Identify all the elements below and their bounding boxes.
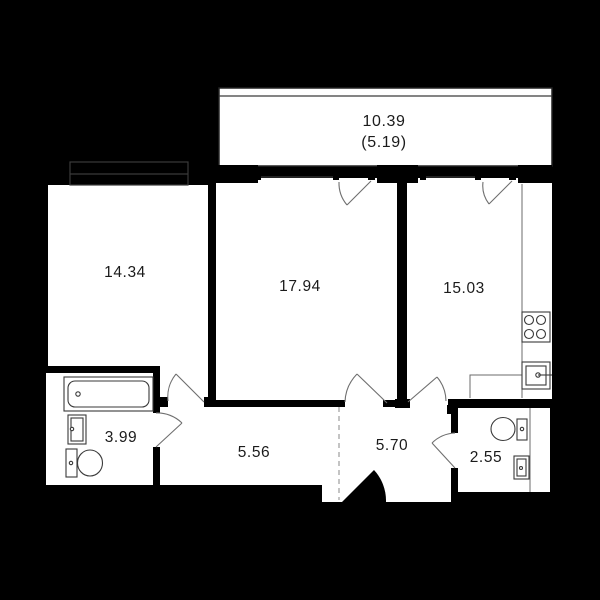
wall-segment	[208, 165, 258, 183]
label-entry-hall: 5.70	[376, 437, 409, 454]
window-end-block	[255, 173, 261, 180]
door-hinge-block	[509, 173, 516, 180]
stove-hob	[522, 312, 550, 342]
wall-bedroom-kitchen	[397, 183, 407, 405]
label-balcony-half: (5.19)	[361, 134, 406, 151]
window-end-block	[420, 173, 426, 180]
opening-kitchen	[408, 399, 448, 408]
label-bathroom: 3.99	[105, 429, 138, 446]
washbasin	[68, 415, 86, 444]
door-hinge-block	[368, 173, 375, 180]
opening-wc	[451, 433, 458, 468]
entry-floor	[322, 485, 451, 502]
wall-living-bedroom	[208, 183, 216, 407]
opening-bathroom	[153, 413, 160, 447]
wall-bathroom-right-lower	[153, 447, 160, 485]
label-living-room: 14.34	[104, 264, 146, 281]
wall-segment	[518, 165, 552, 183]
label-kitchen: 15.03	[443, 280, 485, 297]
floor-plan: 10.39 (5.19) 14.34 17.94 15.03 3.99 5.56…	[0, 0, 600, 600]
label-hallway: 5.56	[238, 444, 271, 461]
wall-segment	[395, 399, 410, 408]
label-wc: 2.55	[470, 449, 503, 466]
living-room-nook-floor	[160, 185, 208, 397]
window-end-block	[333, 173, 339, 180]
opening-bedroom	[345, 400, 387, 407]
wall-bathroom-right-upper	[153, 373, 160, 413]
label-bedroom: 17.94	[279, 278, 321, 295]
wall-wc-left-upper	[451, 408, 458, 433]
wc-sink	[514, 456, 529, 479]
wall-segment	[160, 397, 168, 407]
window-end-block	[475, 173, 481, 180]
bathtub	[64, 377, 153, 411]
label-balcony: 10.39	[362, 113, 405, 130]
floor-plan-canvas: 10.39 (5.19) 14.34 17.94 15.03 3.99 5.56…	[0, 0, 600, 600]
wall-segment	[377, 165, 418, 183]
wall-bathroom-top	[40, 366, 160, 373]
wall-wc-left-lower	[451, 468, 458, 492]
kitchen-sink	[522, 362, 552, 389]
wall-segment	[204, 397, 216, 407]
opening-living-room	[168, 397, 204, 407]
wall-kitchen-bottom	[448, 399, 552, 408]
wall-bedroom-bottom	[216, 400, 345, 407]
toilet	[66, 449, 103, 477]
wc-toilet	[491, 418, 527, 441]
